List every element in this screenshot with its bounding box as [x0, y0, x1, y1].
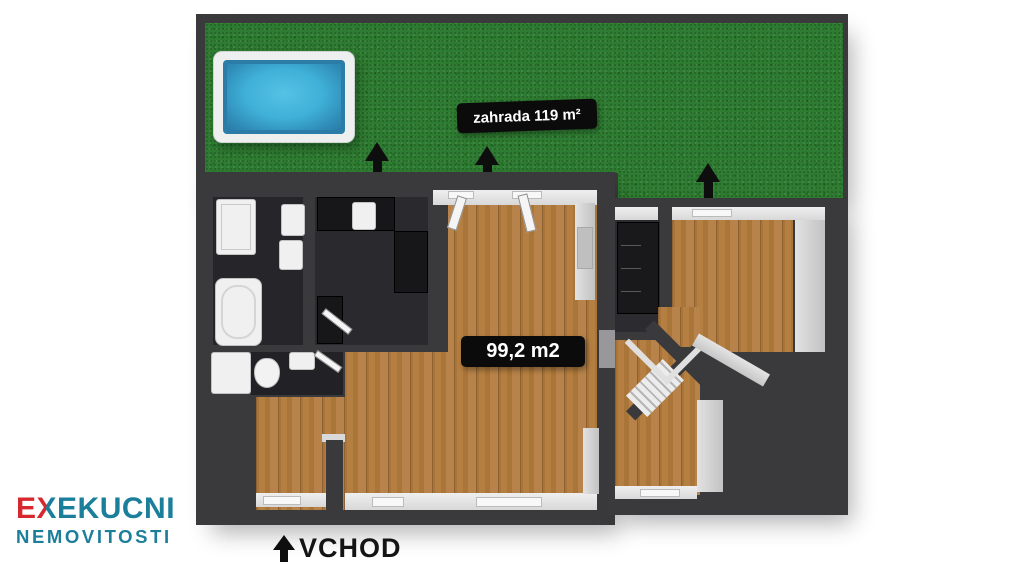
bedroom2-right-wall — [795, 220, 825, 352]
arrow-head — [273, 535, 295, 550]
kitchen-sink — [352, 202, 376, 230]
swimming-pool — [213, 51, 355, 143]
wardrobe-shelf-line — [621, 245, 641, 246]
floor-area-label: 99,2 m2 — [461, 336, 585, 367]
arrow-head — [696, 163, 720, 182]
shower-cabin — [216, 199, 256, 255]
garden-area-label: zahrada 119 m² — [457, 99, 598, 134]
window-niche — [476, 497, 542, 507]
garden-area-text: zahrada 119 m² — [473, 106, 581, 127]
logo-letter-e: E — [16, 492, 37, 525]
window-niche — [640, 489, 680, 497]
floorplan-render: zahrada 119 m² — [0, 0, 1024, 576]
arrow-head — [475, 146, 499, 165]
wc-cabinet — [211, 352, 251, 394]
toilet — [254, 358, 280, 388]
stair-room-right-wall — [697, 400, 723, 492]
bathroom-cabinet — [279, 240, 303, 270]
window-niche — [263, 496, 301, 505]
window-niche — [692, 209, 732, 217]
entrance-text: VCHOD — [299, 533, 402, 564]
shower-door-line — [221, 204, 251, 250]
wall-stub — [326, 440, 343, 512]
window-niche — [372, 497, 404, 507]
bathroom-sink — [281, 204, 305, 236]
entrance-arrow-icon — [273, 535, 295, 562]
wall-niche — [577, 227, 593, 269]
arrow-stem — [280, 549, 288, 562]
doorway-threshold — [599, 330, 615, 368]
wardrobe — [617, 222, 659, 314]
logo-word1-rest: EKUCNI — [57, 492, 175, 525]
logo-letter-x: X — [37, 492, 58, 525]
pool-water — [223, 60, 345, 134]
entrance-label-group: VCHOD — [273, 533, 402, 564]
wardrobe-shelf-line — [621, 291, 641, 292]
garden-grass-right — [618, 170, 843, 198]
arrow-head — [365, 142, 389, 161]
company-logo: EXEKUCNI NEMOVITOSTI — [16, 494, 175, 547]
logo-line2: NEMOVITOSTI — [16, 528, 175, 547]
closet-divider-wall — [658, 207, 672, 307]
bathtub-basin — [221, 285, 256, 339]
bathtub — [215, 278, 262, 346]
wardrobe-shelf-line — [621, 268, 641, 269]
logo-line1: EXEKUCNI — [16, 494, 175, 524]
kitchen-cabinet-right — [394, 231, 428, 293]
floor-area-text: 99,2 m2 — [486, 340, 559, 363]
wc-sink — [289, 352, 315, 370]
living-right-wall — [583, 428, 599, 494]
